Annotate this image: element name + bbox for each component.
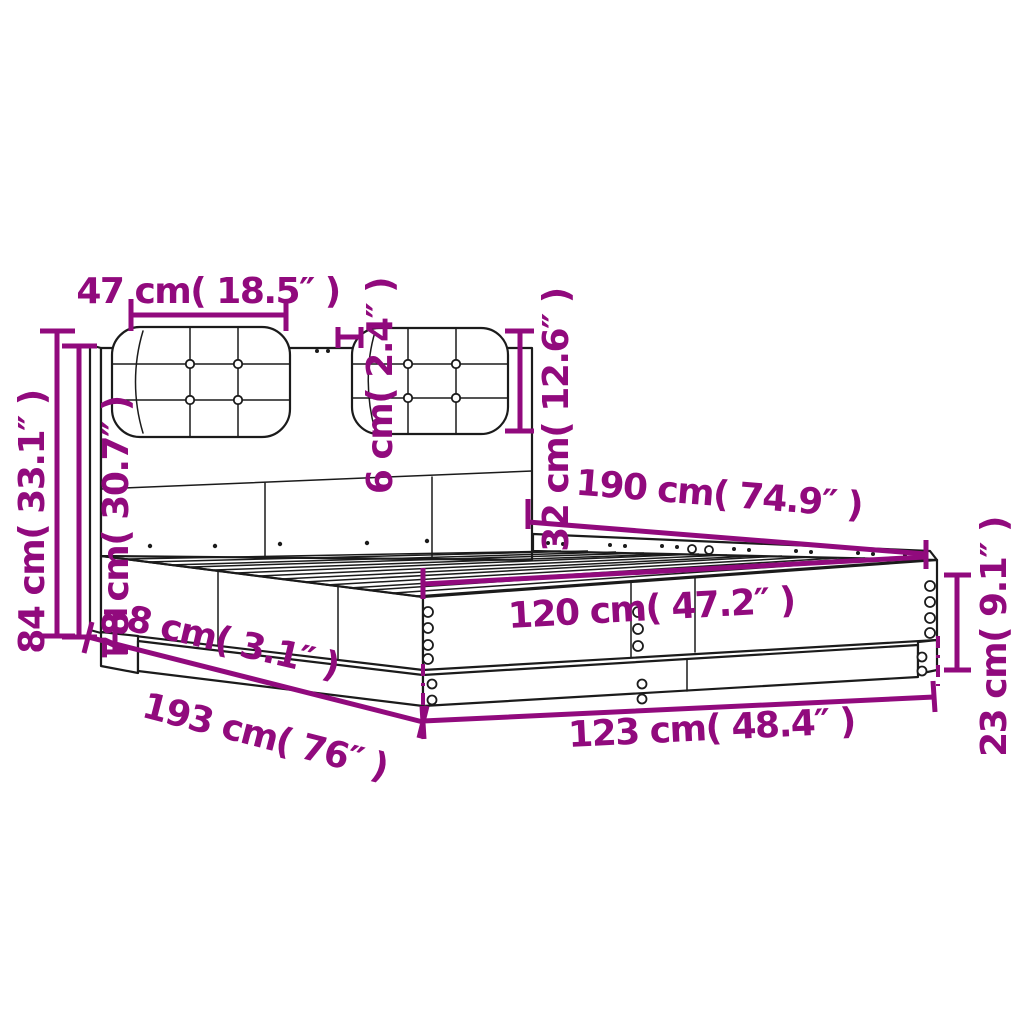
diagram-canvas: 47 cm( 18.5″ ) 6 cm( 2.4″ ) 32 cm( 12.6″… <box>0 0 1024 1024</box>
cushion-thickness-label: 6 cm( 2.4″ ) <box>360 278 401 494</box>
headboard-total-height-label: 84 cm( 33.1″ ) <box>12 390 53 653</box>
dim-frame-height: 23 cm( 9.1″ ) <box>944 517 1015 757</box>
bed-length-label: 190 cm( 74.9″ ) <box>574 463 863 527</box>
frame-height-label: 23 cm( 9.1″ ) <box>974 517 1015 757</box>
total-width-label: 123 cm( 48.4″ ) <box>567 701 856 756</box>
total-length-label: 193 cm( 76″ ) <box>138 686 391 789</box>
cushion-height-label: 32 cm( 12.6″ ) <box>536 288 577 551</box>
dim-cushion-width: 47 cm( 18.5″ ) <box>76 271 339 331</box>
cushion-left-body <box>112 327 290 437</box>
cushion-width-label: 47 cm( 18.5″ ) <box>76 271 339 312</box>
headboard-cushion-left <box>112 327 290 437</box>
bed-frame-dimension-diagram: 47 cm( 18.5″ ) 6 cm( 2.4″ ) 32 cm( 12.6″… <box>0 0 1024 1024</box>
dim-headboard-total-height: 84 cm( 33.1″ ) <box>12 331 75 654</box>
